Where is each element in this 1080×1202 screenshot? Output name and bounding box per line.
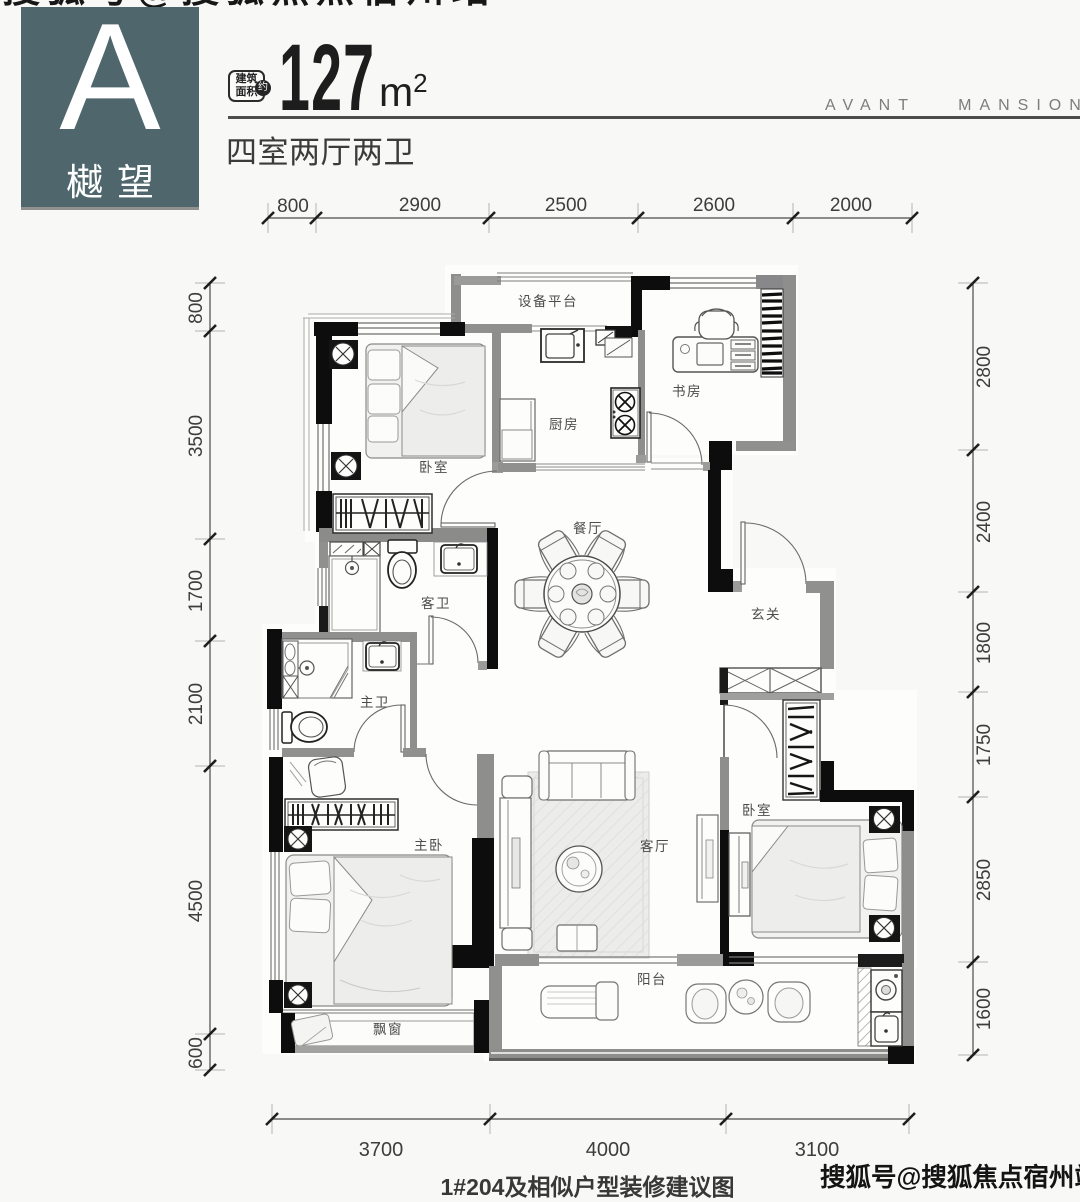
svg-text:800: 800 bbox=[186, 292, 207, 324]
svg-text:书房: 书房 bbox=[672, 384, 702, 399]
svg-text:设备平台: 设备平台 bbox=[518, 293, 578, 309]
svg-text:2000: 2000 bbox=[830, 195, 872, 216]
svg-text:客厅: 客厅 bbox=[640, 838, 670, 854]
svg-text:客卫: 客卫 bbox=[421, 595, 451, 611]
svg-text:1600: 1600 bbox=[974, 988, 995, 1030]
svg-text:4000: 4000 bbox=[586, 1139, 631, 1161]
svg-text:卧室: 卧室 bbox=[419, 459, 449, 475]
svg-text:800: 800 bbox=[277, 196, 309, 217]
svg-text:2600: 2600 bbox=[693, 195, 735, 216]
svg-text:600: 600 bbox=[186, 1037, 207, 1069]
svg-text:1700: 1700 bbox=[186, 570, 207, 612]
svg-text:主卧: 主卧 bbox=[414, 838, 444, 853]
svg-text:3700: 3700 bbox=[359, 1139, 404, 1161]
svg-text:玄关: 玄关 bbox=[751, 606, 781, 622]
svg-text:1750: 1750 bbox=[974, 724, 995, 766]
svg-text:飘窗: 飘窗 bbox=[373, 1021, 403, 1037]
svg-text:卧室: 卧室 bbox=[742, 802, 772, 818]
svg-text:阳台: 阳台 bbox=[637, 972, 667, 987]
svg-text:2500: 2500 bbox=[545, 195, 587, 216]
svg-text:餐厅: 餐厅 bbox=[573, 521, 603, 536]
svg-text:4500: 4500 bbox=[186, 880, 207, 922]
svg-text:2400: 2400 bbox=[974, 501, 995, 543]
svg-text:2850: 2850 bbox=[974, 859, 995, 901]
svg-text:2800: 2800 bbox=[974, 346, 995, 388]
svg-text:厨房: 厨房 bbox=[549, 417, 579, 432]
svg-text:2900: 2900 bbox=[399, 195, 441, 216]
svg-text:2100: 2100 bbox=[186, 683, 207, 725]
svg-text:3500: 3500 bbox=[186, 415, 207, 457]
svg-text:1800: 1800 bbox=[974, 622, 995, 664]
